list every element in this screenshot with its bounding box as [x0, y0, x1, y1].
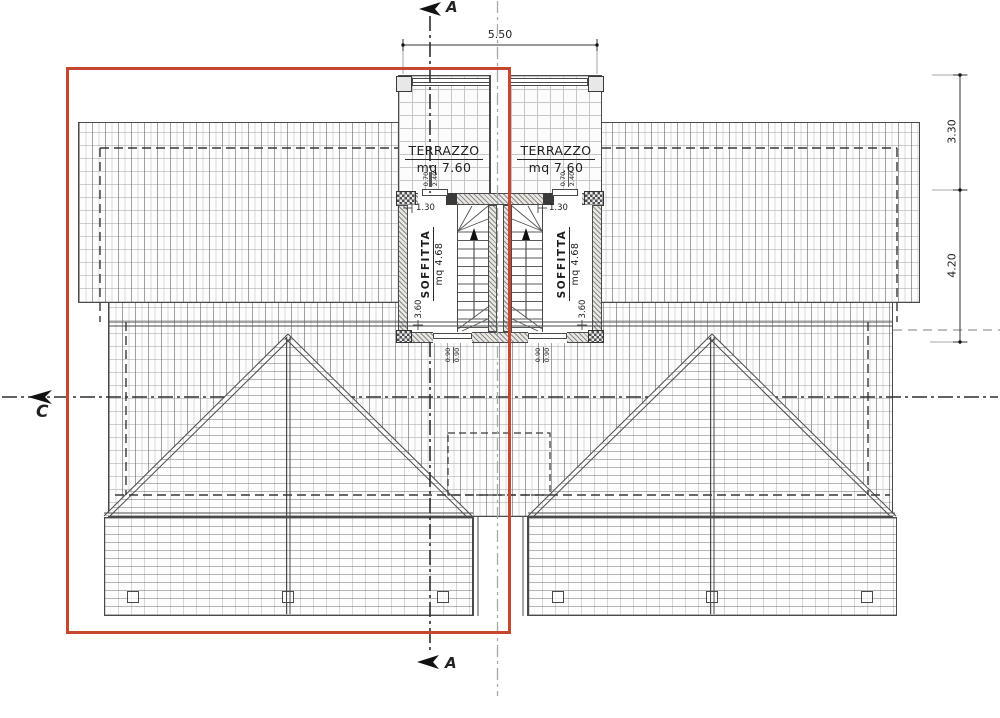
- room-label-terrace-right: TERRAZZO mq 7.60: [516, 142, 596, 176]
- section-label-a-top: A: [446, 0, 458, 16]
- dim-attic-width-right: 1.30: [549, 203, 575, 213]
- roof-marker: [552, 591, 564, 603]
- section-a-arrow-top: [419, 2, 441, 16]
- terrace-railing-right: [510, 78, 588, 86]
- dim-top-width: 5.50: [470, 28, 530, 41]
- roof-marker: [861, 591, 873, 603]
- room-area: mq 4.68: [570, 243, 581, 286]
- corner-pillar: [588, 330, 604, 343]
- section-a-arrow-bottom: [417, 655, 439, 669]
- dim-right-lower: 4.20: [946, 246, 959, 286]
- dim-right-upper: 3.30: [946, 112, 959, 152]
- room-name: TERRAZZO: [517, 143, 594, 160]
- dim-opening-bottom-right: 0.900.90: [533, 340, 553, 370]
- terrace-right: [510, 75, 602, 195]
- door-sill-right: [528, 333, 567, 339]
- corner-pillar: [584, 191, 604, 206]
- opening-height: 0.90: [544, 348, 551, 362]
- roof-plan-drawing: TERRAZZO mq 7.60 TERRAZZO mq 7.60 SOFFIT…: [0, 0, 1000, 718]
- section-label-a-bottom: A: [445, 654, 457, 672]
- section-label-c: C: [36, 402, 48, 422]
- dim-opening-top-right: 0.702.40: [558, 164, 578, 194]
- roof-marker: [706, 591, 718, 603]
- room-name: SOFFITTA: [556, 227, 570, 302]
- opening-height: 2.40: [569, 172, 576, 186]
- highlight-rectangle-left-unit: [66, 67, 511, 634]
- room-label-attic-right: SOFFITTA mq 4.68: [538, 233, 598, 295]
- terrace-pillar-right: [588, 76, 604, 92]
- dim-attic-depth-right: 3.60: [578, 294, 588, 324]
